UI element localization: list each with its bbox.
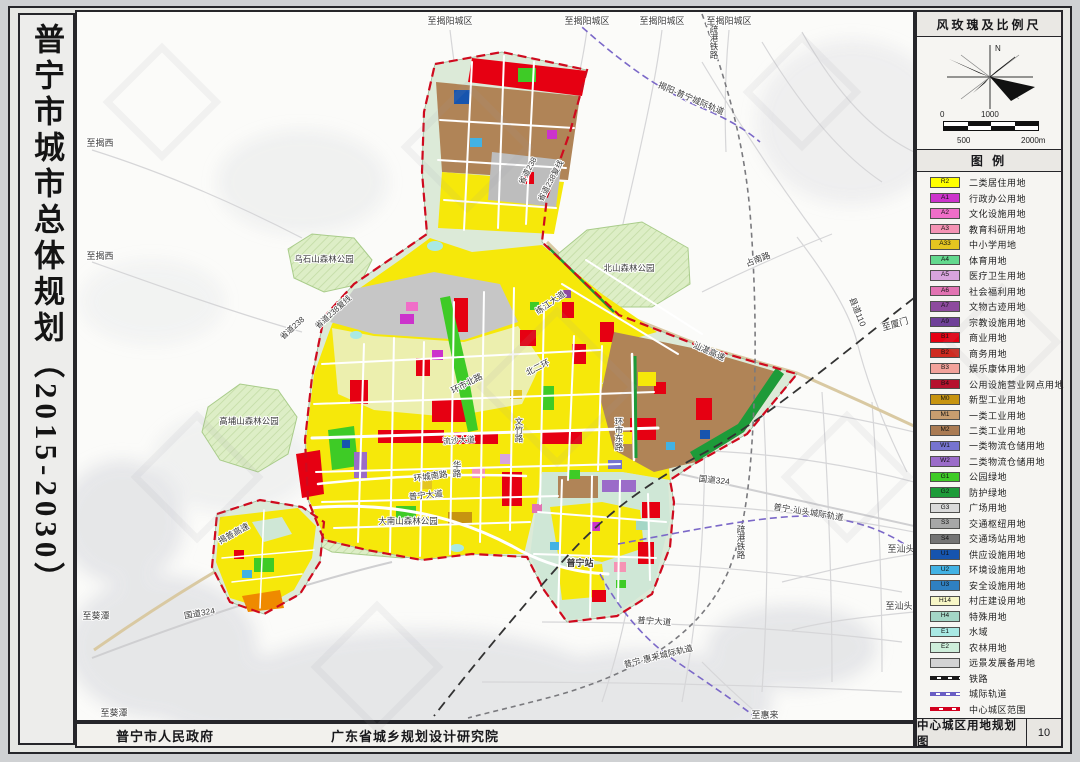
legend-item: G3广场用地 xyxy=(917,500,1061,515)
map-canvas: 至揭阳城区至揭阳城区至揭阳城区至揭阳城区疏港铁路揭阳-普宁城际轨道至揭西至揭西乌… xyxy=(75,10,915,722)
legend-swatch: B3 xyxy=(930,363,960,374)
map-label: 普宁-汕头城际轨道 xyxy=(773,502,845,523)
map-label: 北山森林公园 xyxy=(603,263,654,273)
legend-swatch: B4 xyxy=(930,379,960,390)
legend-swatch: A9 xyxy=(930,317,960,328)
government-credit: 普宁市人民政府 xyxy=(85,724,245,746)
legend-label: 文物古迹用地 xyxy=(969,300,1026,313)
legend-swatch: R2 xyxy=(930,177,960,188)
legend-label: 商务用地 xyxy=(969,347,1007,360)
legend-swatch: A3 xyxy=(930,224,960,235)
legend-swatch: A4 xyxy=(930,255,960,266)
legend-label: 二类物流仓储用地 xyxy=(969,455,1045,468)
legend-item: G1公园绿地 xyxy=(917,469,1061,484)
legend-label: 防护绿地 xyxy=(969,486,1007,499)
plan-sheet: 普宁市城市总体规划（2015-2030） xyxy=(0,0,1080,762)
sheet-title-column: 普宁市城市总体规划（2015-2030） xyxy=(18,13,75,745)
scale-bar: 0 1000 500 2000m xyxy=(943,121,1039,133)
legend-line-metro xyxy=(930,692,960,696)
map-label: 至葵潭 xyxy=(100,707,127,718)
legend-item: B3娱乐康体用地 xyxy=(917,361,1061,376)
institute-credit: 广东省城乡规划设计研究院 xyxy=(265,724,565,746)
legend-line-rail xyxy=(930,676,960,680)
map-label: 至汕头 xyxy=(885,601,912,611)
sheet-number: 10 xyxy=(1026,719,1061,746)
legend-label: 村庄建设用地 xyxy=(969,594,1026,607)
legend-label: 公用设施营业网点用地 xyxy=(969,378,1064,391)
scale-0: 0 xyxy=(940,110,944,119)
legend-label: 宗教设施用地 xyxy=(969,316,1026,329)
sheet-title: 中心城区用地规划图 xyxy=(917,719,1026,746)
legend-item: 中心城区范围 xyxy=(917,701,1061,716)
legend-swatch: H4 xyxy=(930,611,960,622)
legend-item: R2二类居住用地 xyxy=(917,175,1061,190)
legend-swatch: W1 xyxy=(930,441,960,452)
map-label: 疏港铁路 xyxy=(736,524,746,560)
legend-item: B2商务用地 xyxy=(917,345,1061,360)
legend-item: G2防护绿地 xyxy=(917,485,1061,500)
legend-header: 图 例 xyxy=(917,149,1061,172)
map-label: 至揭西 xyxy=(86,250,113,261)
legend-swatch: A6 xyxy=(930,286,960,297)
legend-label: 公园绿地 xyxy=(969,470,1007,483)
legend-label: 文化设施用地 xyxy=(969,207,1026,220)
legend-label: 商业用地 xyxy=(969,331,1007,344)
map-label: 环市东路 xyxy=(614,417,624,452)
legend-label: 城际轨道 xyxy=(969,687,1007,700)
legend-label: 医疗卫生用地 xyxy=(969,269,1026,282)
legend-item: 远景发展备用地 xyxy=(917,655,1061,670)
legend-item: B1商业用地 xyxy=(917,330,1061,345)
map-label: 普宁站 xyxy=(566,557,593,568)
legend-item: W1一类物流仓储用地 xyxy=(917,438,1061,453)
map-label: 至惠来 xyxy=(751,709,778,720)
windrose: N xyxy=(917,37,1063,117)
scale-2000: 2000m xyxy=(1021,136,1045,145)
legend-swatch: W2 xyxy=(930,456,960,467)
windrose-area: N 0 1000 500 2000m xyxy=(917,37,1061,149)
legend-swatch: A7 xyxy=(930,301,960,312)
legend-label: 广场用地 xyxy=(969,501,1007,514)
credits-bar: 普宁市人民政府 广东省城乡规划设计研究院 xyxy=(75,722,915,748)
scale-500: 500 xyxy=(957,136,970,145)
legend-list: R2二类居住用地A1行政办公用地A2文化设施用地A3教育科研用地A33中小学用地… xyxy=(917,172,1061,720)
legend-item: A1行政办公用地 xyxy=(917,190,1061,205)
sheet-footer: 中心城区用地规划图 10 xyxy=(917,718,1061,746)
legend-label: 教育科研用地 xyxy=(969,223,1026,236)
map-label: 文竹路 xyxy=(514,417,524,444)
map-label: 国道324 xyxy=(698,473,730,486)
legend-label: 中小学用地 xyxy=(969,238,1017,251)
legend-swatch: S4 xyxy=(930,534,960,545)
legend-swatch: E2 xyxy=(930,642,960,653)
map-label: 至揭阳城区 xyxy=(564,15,609,26)
legend-label: 远景发展备用地 xyxy=(969,656,1036,669)
legend-item: A3教育科研用地 xyxy=(917,221,1061,236)
legend-item: M1一类工业用地 xyxy=(917,407,1061,422)
legend-swatch: H14 xyxy=(930,596,960,607)
map-label: 大南山森林公园 xyxy=(378,516,438,526)
legend-swatch: G1 xyxy=(930,472,960,483)
legend-swatch: U3 xyxy=(930,580,960,591)
map-label: 华路 xyxy=(452,460,462,479)
legend-swatch: U2 xyxy=(930,565,960,576)
map-label: 至汕头 xyxy=(887,544,914,554)
legend-label: 水域 xyxy=(969,625,988,638)
legend-item: S3交通枢纽用地 xyxy=(917,516,1061,531)
legend-label: 一类物流仓储用地 xyxy=(969,439,1045,452)
legend-label: 铁路 xyxy=(969,672,988,685)
legend-swatch: U1 xyxy=(930,549,960,560)
map-label: 乌石山森林公园 xyxy=(294,254,354,264)
legend-item: A4体育用地 xyxy=(917,252,1061,267)
legend-label: 供应设施用地 xyxy=(969,548,1026,561)
legend-item: 铁路 xyxy=(917,671,1061,686)
legend-item: A6社会福利用地 xyxy=(917,283,1061,298)
legend-label: 二类居住用地 xyxy=(969,176,1026,189)
intercity-jieyang xyxy=(574,20,760,142)
legend-item: U1供应设施用地 xyxy=(917,547,1061,562)
legend-swatch: B1 xyxy=(930,332,960,343)
map-label: 至揭阳城区 xyxy=(639,15,684,26)
legend-label: 新型工业用地 xyxy=(969,393,1026,406)
legend-label: 一类工业用地 xyxy=(969,409,1026,422)
legend-swatch: A1 xyxy=(930,193,960,204)
legend-label: 特殊用地 xyxy=(969,610,1007,623)
legend-swatch: E1 xyxy=(930,627,960,638)
legend-line-boundary xyxy=(930,707,960,711)
legend-swatch: M1 xyxy=(930,410,960,421)
legend-item: E1水域 xyxy=(917,624,1061,639)
map-label: 省道238 xyxy=(278,314,307,341)
legend-item: 城际轨道 xyxy=(917,686,1061,701)
legend-label: 交通场站用地 xyxy=(969,532,1026,545)
legend-item: A9宗教设施用地 xyxy=(917,314,1061,329)
legend-swatch: M2 xyxy=(930,425,960,436)
map-label: 至揭阳城区 xyxy=(427,15,472,26)
legend-item: B4公用设施营业网点用地 xyxy=(917,376,1061,391)
legend-swatch: B2 xyxy=(930,348,960,359)
map-label: 至葵潭 xyxy=(82,610,109,621)
legend-label: 安全设施用地 xyxy=(969,579,1026,592)
legend-item: U3安全设施用地 xyxy=(917,578,1061,593)
map-label: 至厦门 xyxy=(881,315,910,333)
legend-label: 娱乐康体用地 xyxy=(969,362,1026,375)
legend-swatch: S3 xyxy=(930,518,960,529)
map-label: 疏港铁路 xyxy=(709,24,719,60)
legend-label: 交通枢纽用地 xyxy=(969,517,1026,530)
north-label: N xyxy=(995,44,1001,53)
map-label: 至揭西 xyxy=(86,137,113,148)
legend-swatch: G2 xyxy=(930,487,960,498)
legend-item: M0新型工业用地 xyxy=(917,392,1061,407)
legend-label: 体育用地 xyxy=(969,254,1007,267)
legend-item: W2二类物流仓储用地 xyxy=(917,454,1061,469)
legend-label: 农林用地 xyxy=(969,641,1007,654)
legend-swatch: A2 xyxy=(930,208,960,219)
map-label: 普宁大道 xyxy=(637,615,672,627)
legend-item: E2农林用地 xyxy=(917,640,1061,655)
legend-swatch: A5 xyxy=(930,270,960,281)
legend-item: H14村庄建设用地 xyxy=(917,593,1061,608)
legend-label: 环境设施用地 xyxy=(969,563,1026,576)
legend-label: 社会福利用地 xyxy=(969,285,1026,298)
legend-item: H4特殊用地 xyxy=(917,609,1061,624)
legend-item: S4交通场站用地 xyxy=(917,531,1061,546)
legend-item: U2环境设施用地 xyxy=(917,562,1061,577)
legend-swatch xyxy=(930,658,960,669)
legend-label: 二类工业用地 xyxy=(969,424,1026,437)
legend-item: A7文物古迹用地 xyxy=(917,299,1061,314)
legend-item: A2文化设施用地 xyxy=(917,206,1061,221)
legend-label: 行政办公用地 xyxy=(969,192,1026,205)
legend-label: 中心城区范围 xyxy=(969,703,1026,716)
legend-item: A5医疗卫生用地 xyxy=(917,268,1061,283)
legend-swatch: G3 xyxy=(930,503,960,514)
legend-item: M2二类工业用地 xyxy=(917,423,1061,438)
info-panel: 风玫瑰及比例尺 N 0 1000 xyxy=(915,10,1063,748)
legend-item: A33中小学用地 xyxy=(917,237,1061,252)
legend-swatch: M0 xyxy=(930,394,960,405)
windrose-header: 风玫瑰及比例尺 xyxy=(917,12,1061,37)
scale-1000: 1000 xyxy=(981,110,999,119)
legend-swatch: A33 xyxy=(930,239,960,250)
plan-title: 普宁市城市总体规划（2015-2030） xyxy=(24,23,69,743)
map-label: 高埔山森林公园 xyxy=(219,416,279,426)
